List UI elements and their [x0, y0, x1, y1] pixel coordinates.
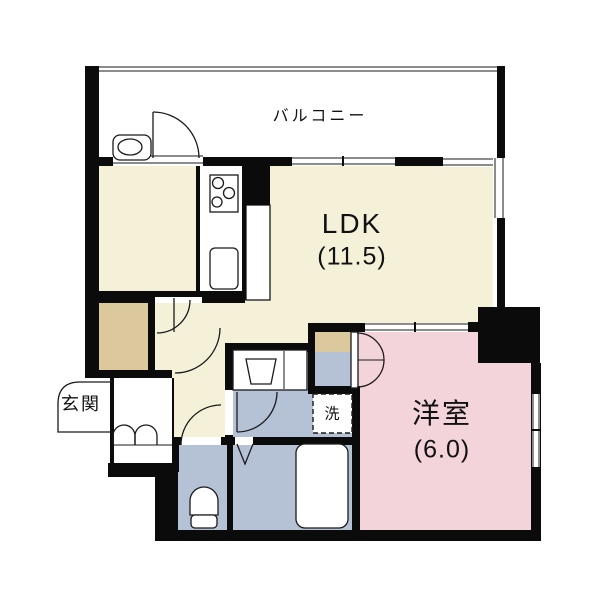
bathroom-door-opening: [235, 437, 253, 445]
toilet-tank-bowl: [190, 487, 218, 515]
pillar-top-right: [478, 307, 540, 363]
wall-western-top-b: [468, 322, 497, 332]
wall-toilet-bathroom-divider: [227, 443, 233, 533]
wall-western-left: [352, 386, 360, 533]
sliding-door-tick: [414, 322, 416, 332]
wall-balcony-right: [497, 66, 505, 158]
hallway-floor-right: [233, 303, 310, 343]
toilet-door-opening: [181, 437, 221, 445]
washer-label: 洗: [324, 407, 339, 422]
wall-ldk-right: [497, 218, 505, 307]
entrance-floor: [113, 378, 172, 463]
window-ldk-top-tick: [342, 156, 344, 166]
wall-kitchen-bottom-line: [155, 291, 202, 297]
kitchen-doorway-threshold: [155, 297, 202, 303]
entrance-hall-divider: [172, 378, 174, 445]
closet-left-floor: [99, 303, 148, 370]
wall-kitchen-partition: [242, 160, 246, 300]
toilet-base: [191, 515, 217, 528]
balcony-label: バルコニー: [273, 109, 368, 125]
hallway-floor-upper: [155, 303, 233, 378]
hallway-floor-lower: [172, 378, 233, 438]
wall-western-top-a: [308, 323, 365, 332]
kitchen-counter-edge: [196, 166, 200, 300]
kitchen-sink: [210, 248, 238, 289]
wall-entrance-left: [110, 378, 114, 463]
wall-top-c: [395, 157, 443, 166]
wall-closet-left-right: [148, 296, 155, 378]
wall-top-a: [99, 157, 113, 166]
wall-closet-left-bottom: [85, 370, 172, 378]
floor-plan-drawing: [0, 0, 600, 600]
western-room-size-label: (6.0): [414, 438, 470, 463]
wall-closet-right-left: [308, 332, 315, 388]
floor-plan: バルコニー LDK (11.5) 洋室 (6.0) 玄関 洗: [0, 0, 600, 600]
wall-kitchen-chunk: [246, 160, 270, 205]
western-room-label: 洋室: [412, 400, 472, 428]
washroom-door-opening: [225, 390, 233, 435]
kitchen-counter-side-panel: [246, 205, 270, 300]
wall-kitchen-bottom-a: [92, 291, 155, 303]
wall-bottom: [155, 530, 541, 541]
ldk-size-label: (11.5): [317, 245, 386, 270]
wall-kitchen-bottom-b: [202, 291, 245, 303]
wall-outer-left: [85, 66, 99, 378]
bathtub: [296, 444, 348, 528]
closet-right-door-leaves: [351, 332, 358, 388]
entrance-label: 玄関: [61, 395, 101, 413]
wall-closet-right-bottom: [308, 386, 356, 394]
wall-entrance-bottom: [108, 463, 178, 477]
window-western-tick: [531, 429, 541, 431]
wall-bottom-left-vertical: [155, 470, 178, 532]
ldk-label: LDK: [322, 210, 382, 238]
